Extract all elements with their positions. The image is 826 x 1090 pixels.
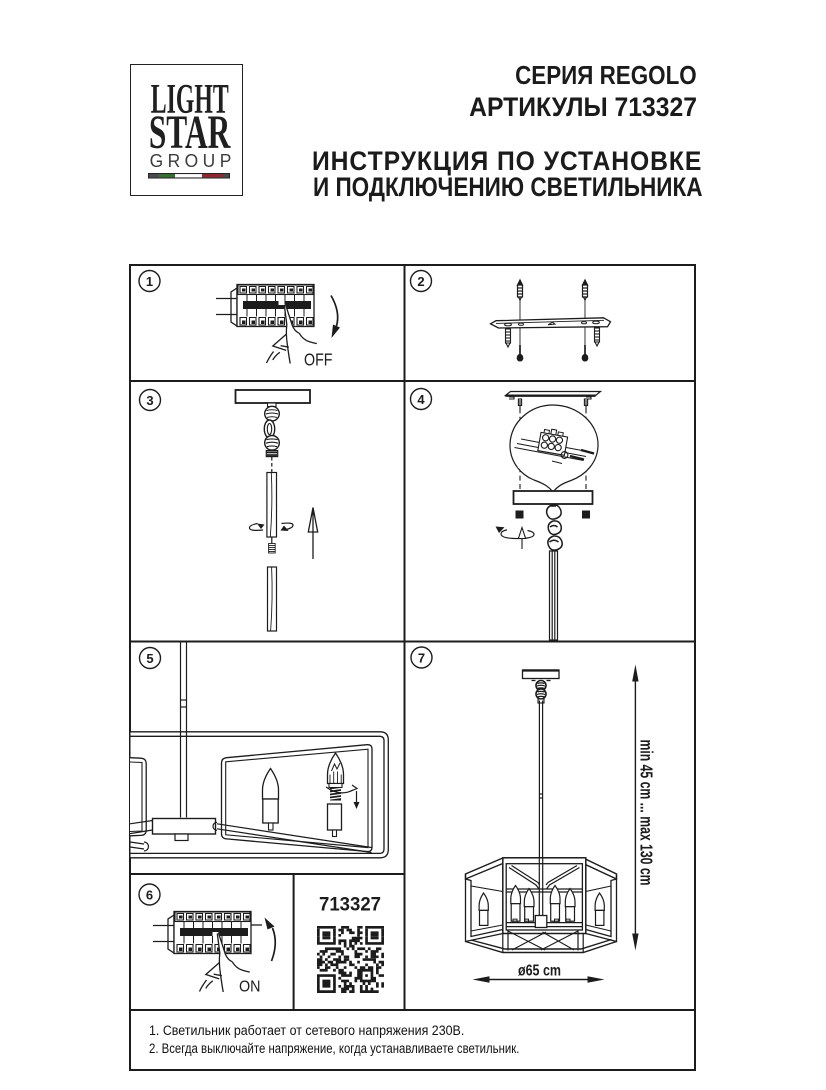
- svg-text:3: 3: [146, 393, 153, 408]
- svg-text:713327: 713327: [319, 894, 381, 916]
- svg-text:1: 1: [146, 274, 153, 289]
- svg-text:4: 4: [417, 392, 425, 407]
- svg-text:6: 6: [146, 888, 153, 903]
- svg-text:OFF: OFF: [304, 350, 333, 370]
- svg-text:min 45 cm ... max 130 cm: min 45 cm ... max 130 cm: [637, 740, 657, 886]
- svg-text:5: 5: [146, 651, 153, 666]
- svg-text:ø65 cm: ø65 cm: [518, 963, 561, 980]
- svg-text:7: 7: [418, 651, 425, 666]
- svg-text:ON: ON: [239, 979, 261, 996]
- svg-text:2: 2: [417, 274, 424, 289]
